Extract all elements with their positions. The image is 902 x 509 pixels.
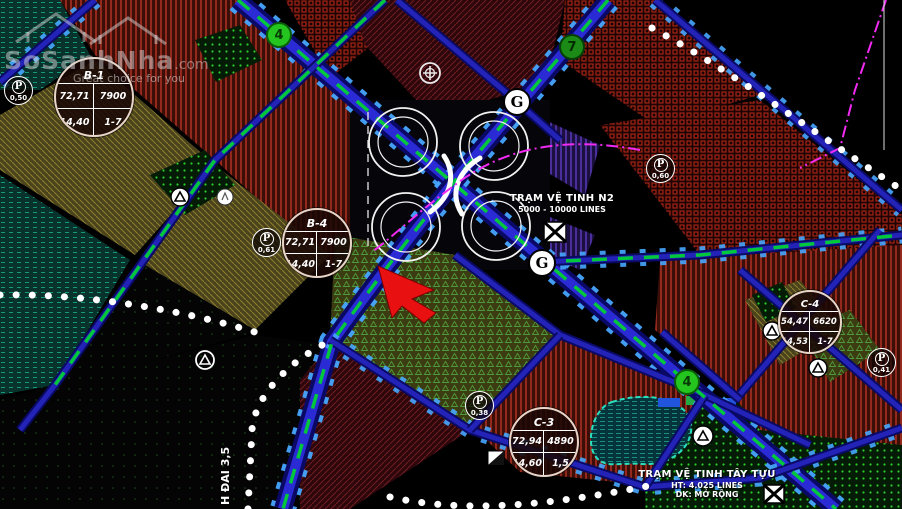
junction-marker-g: G [528, 249, 556, 277]
district-boundary-east [800, 0, 886, 168]
ring-road-label: H ĐAI 3,5 [219, 447, 232, 505]
watermark-house-icon [4, 4, 194, 46]
school-icon [809, 359, 827, 377]
parcel-area: 54,47 [780, 312, 810, 332]
parcel-circle-c4: C-4 54,47 6620 14,53 1-7 [778, 290, 842, 354]
parcel-area: 72,71 [284, 232, 317, 254]
station-label-n2: TRẠM VỆ TINH N2 5000 - 10000 LINES [498, 193, 626, 214]
parking-icon: P [875, 352, 889, 366]
circle-symbol-icon [217, 189, 233, 205]
parcel-population: 7900 [317, 232, 350, 254]
parcel-area: 72,71 [56, 84, 94, 110]
watermark-brand: SoSanhNha [4, 46, 174, 75]
station-title: TRẠM VỆ TINH N2 [498, 193, 626, 205]
parcel-population: 7900 [94, 84, 132, 110]
station-line2: HT: 4.025 LINES [636, 481, 778, 490]
parking-value: 0,61 [258, 247, 275, 254]
parking-value: 0,50 [10, 95, 27, 102]
junction-marker-g: G [503, 88, 531, 116]
parking-badge: P 0,61 [252, 228, 281, 257]
station-capacity: 5000 - 10000 LINES [498, 205, 626, 214]
parcel-circle-b4: B-4 72,71 7900 14,40 1-7 [282, 208, 352, 278]
watermark-text: SoSanhNha.com [4, 46, 254, 75]
parking-value: 0,60 [652, 173, 669, 180]
parcel-values: 54,47 6620 14,53 1-7 [780, 312, 840, 352]
satellite-station-icon [544, 222, 566, 242]
parking-icon: P [654, 158, 668, 172]
route-badge-7: 7 [559, 34, 585, 60]
master-plan-map: B-1 72,71 7900 14,40 1-7 B-4 72,71 7900 … [0, 0, 902, 509]
flower-circle-icon [420, 63, 440, 83]
parking-icon: P [260, 232, 274, 246]
parking-value: 0,38 [471, 410, 488, 417]
route-badge-4: 4 [674, 369, 700, 395]
pond [591, 397, 691, 464]
parking-icon: P [473, 395, 487, 409]
parcel-population: 6620 [810, 312, 840, 332]
station-line3: DK: MỞ RỘNG [636, 490, 778, 499]
school-icon [693, 426, 713, 446]
boundary-dots-south [390, 486, 648, 506]
school-icon [171, 188, 189, 206]
parking-badge: P 0,60 [646, 154, 675, 183]
watermark: SoSanhNha.com Great choice for you [4, 4, 254, 85]
parcel-area: 72,94 [511, 431, 544, 453]
station-title: TRẠM VỆ TINH TÂY TỰU [636, 469, 778, 481]
zone-grid-east [600, 100, 902, 255]
parking-badge: P 0,38 [465, 391, 494, 420]
half-square-icon [488, 451, 504, 465]
parcel-population: 4890 [544, 431, 577, 453]
watermark-suffix: .com [174, 57, 208, 73]
route-badge-4: 4 [266, 22, 292, 48]
parking-value: 0,41 [873, 367, 890, 374]
station-label-tay-tuu: TRẠM VỆ TINH TÂY TỰU HT: 4.025 LINES DK:… [636, 469, 778, 499]
parking-badge: P 0,41 [867, 348, 896, 377]
parcel-circle-c3: C-3 72,94 4890 14,60 1,5 [509, 407, 579, 477]
